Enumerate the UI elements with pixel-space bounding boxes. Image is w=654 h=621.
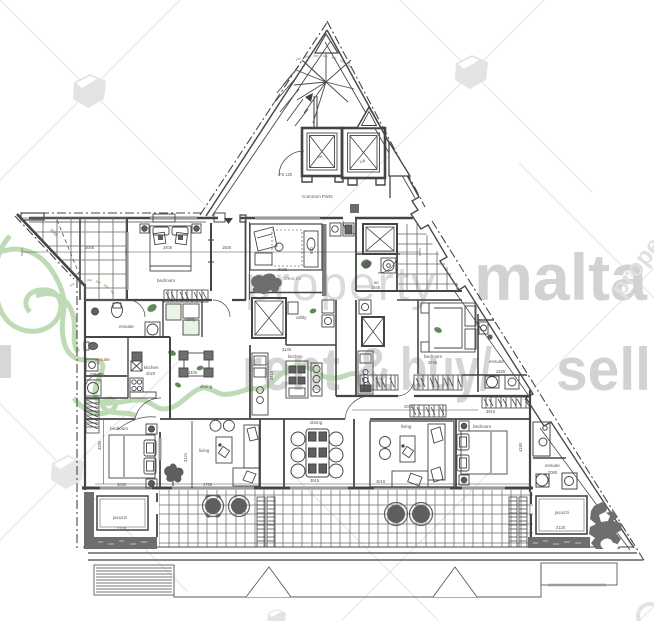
svg-text:3121: 3121 [183, 452, 188, 462]
svg-text:3910: 3910 [486, 409, 496, 414]
svg-text:3405: 3405 [163, 245, 173, 250]
svg-text:bedroom: bedroom [473, 424, 491, 429]
svg-text:dining: dining [310, 420, 323, 425]
svg-text:2080: 2080 [548, 470, 558, 475]
svg-text:1400: 1400 [188, 370, 198, 375]
svg-text:3745: 3745 [428, 360, 438, 365]
svg-text:jacuzzi: jacuzzi [112, 515, 127, 520]
svg-text:Common Parts: Common Parts [302, 194, 333, 199]
svg-text:ensuite: ensuite [545, 463, 560, 468]
svg-text:dress rm: dress rm [284, 276, 301, 281]
svg-text:2325: 2325 [496, 369, 506, 374]
svg-text:1500: 1500 [222, 245, 232, 250]
svg-text:3915: 3915 [310, 478, 320, 483]
svg-text:bedroom: bedroom [110, 426, 128, 431]
svg-text:2120: 2120 [556, 525, 566, 530]
svg-text:FS 120: FS 120 [279, 172, 293, 177]
svg-text:4295: 4295 [97, 440, 102, 450]
svg-text:living: living [199, 448, 210, 453]
svg-text:3145: 3145 [282, 347, 292, 352]
svg-text:bedroom: bedroom [157, 278, 175, 283]
svg-text:utility: utility [296, 315, 307, 320]
svg-text:2120: 2120 [117, 526, 127, 531]
svg-text:jacuzzi: jacuzzi [554, 510, 569, 515]
svg-text:3060: 3060 [117, 482, 127, 487]
svg-text:sell: sell [556, 336, 651, 403]
svg-text:4750: 4750 [203, 482, 213, 487]
svg-text:living: living [401, 424, 412, 429]
svg-text:ensuite: ensuite [489, 359, 504, 364]
svg-text:4010: 4010 [376, 479, 386, 484]
svg-text:2020: 2020 [146, 371, 156, 376]
svg-text:ensuite: ensuite [95, 357, 110, 362]
svg-text:kitchen: kitchen [144, 365, 159, 370]
svg-text:utility: utility [185, 317, 196, 322]
svg-text:bedroom: bedroom [424, 354, 442, 359]
svg-text:1845: 1845 [371, 285, 381, 290]
svg-text:3135: 3135 [278, 267, 288, 272]
svg-text:3410: 3410 [269, 370, 274, 380]
svg-text:4190: 4190 [518, 442, 523, 452]
svg-text:dining: dining [200, 384, 213, 389]
svg-text:Lift: Lift [317, 154, 323, 159]
svg-text:3005: 3005 [85, 245, 95, 250]
svg-text:kitchen: kitchen [288, 354, 303, 359]
svg-text:ensuite: ensuite [119, 324, 134, 329]
svg-text:900: 900 [309, 246, 314, 254]
